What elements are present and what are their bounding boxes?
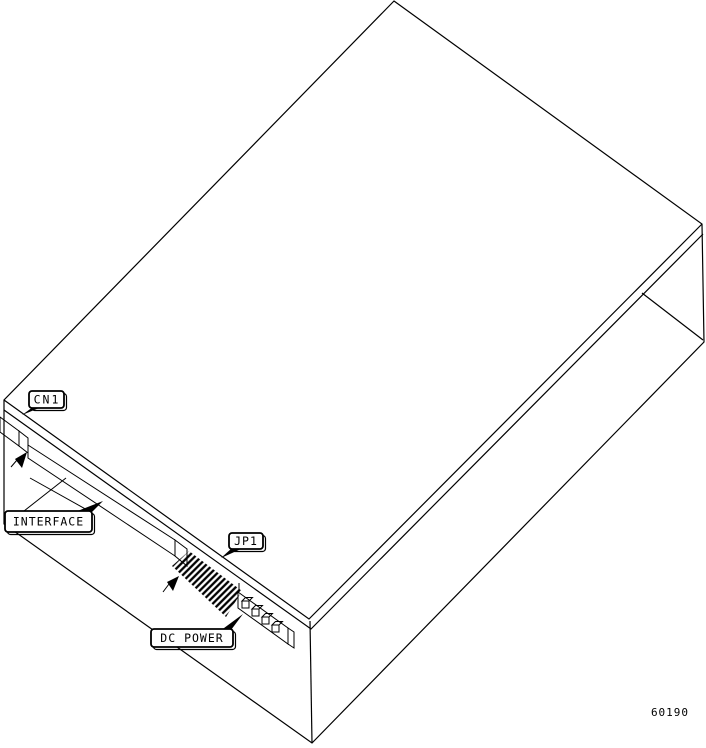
dc-power-pin	[252, 606, 263, 617]
interface-callout: INTERFACE	[5, 478, 103, 535]
pin1-arrow-tail	[163, 584, 169, 592]
jp1-jumper-pins	[172, 551, 242, 617]
cn1-connector-pins	[0, 417, 19, 446]
pin1-arrow-tail	[11, 460, 17, 467]
interface-label: INTERFACE	[13, 515, 84, 529]
dc-power-shell	[238, 592, 288, 644]
front-corner-vertical-edge	[310, 621, 312, 743]
interface-pin1-arrow	[11, 452, 27, 468]
pin1-arrowhead-icon	[167, 576, 179, 591]
drive-body-silhouette	[4, 1, 704, 743]
dc-power-pin	[272, 622, 283, 633]
jp1-pin1-arrow	[163, 576, 179, 592]
jp1-callout: JP1	[221, 533, 266, 558]
interface-card-edge-contacts	[28, 445, 175, 556]
cn1-callout: CN1	[22, 391, 67, 415]
interface-connector	[28, 445, 187, 566]
jp1-jumper-block	[172, 551, 242, 617]
dc-power-shell-end-cap	[288, 628, 294, 648]
dc-power-pin	[262, 614, 273, 625]
jp1-label: JP1	[234, 534, 258, 548]
dc-power-callout: DC POWER	[151, 614, 243, 650]
diagram-page: CN1 INTERFACE JP1 DC POWER 60190	[0, 0, 706, 748]
dc-power-connector	[238, 583, 294, 648]
cn1-connector-end-cap	[19, 431, 28, 453]
dc-power-label: DC POWER	[160, 631, 223, 645]
top-face-front-edges	[4, 224, 702, 619]
figure-number: 60190	[651, 706, 689, 719]
drive-body	[4, 1, 704, 743]
right-side-seam-line	[642, 293, 703, 340]
cn1-label: CN1	[34, 393, 61, 407]
drive-connector-location-diagram: CN1 INTERFACE JP1 DC POWER 60190	[0, 0, 706, 748]
